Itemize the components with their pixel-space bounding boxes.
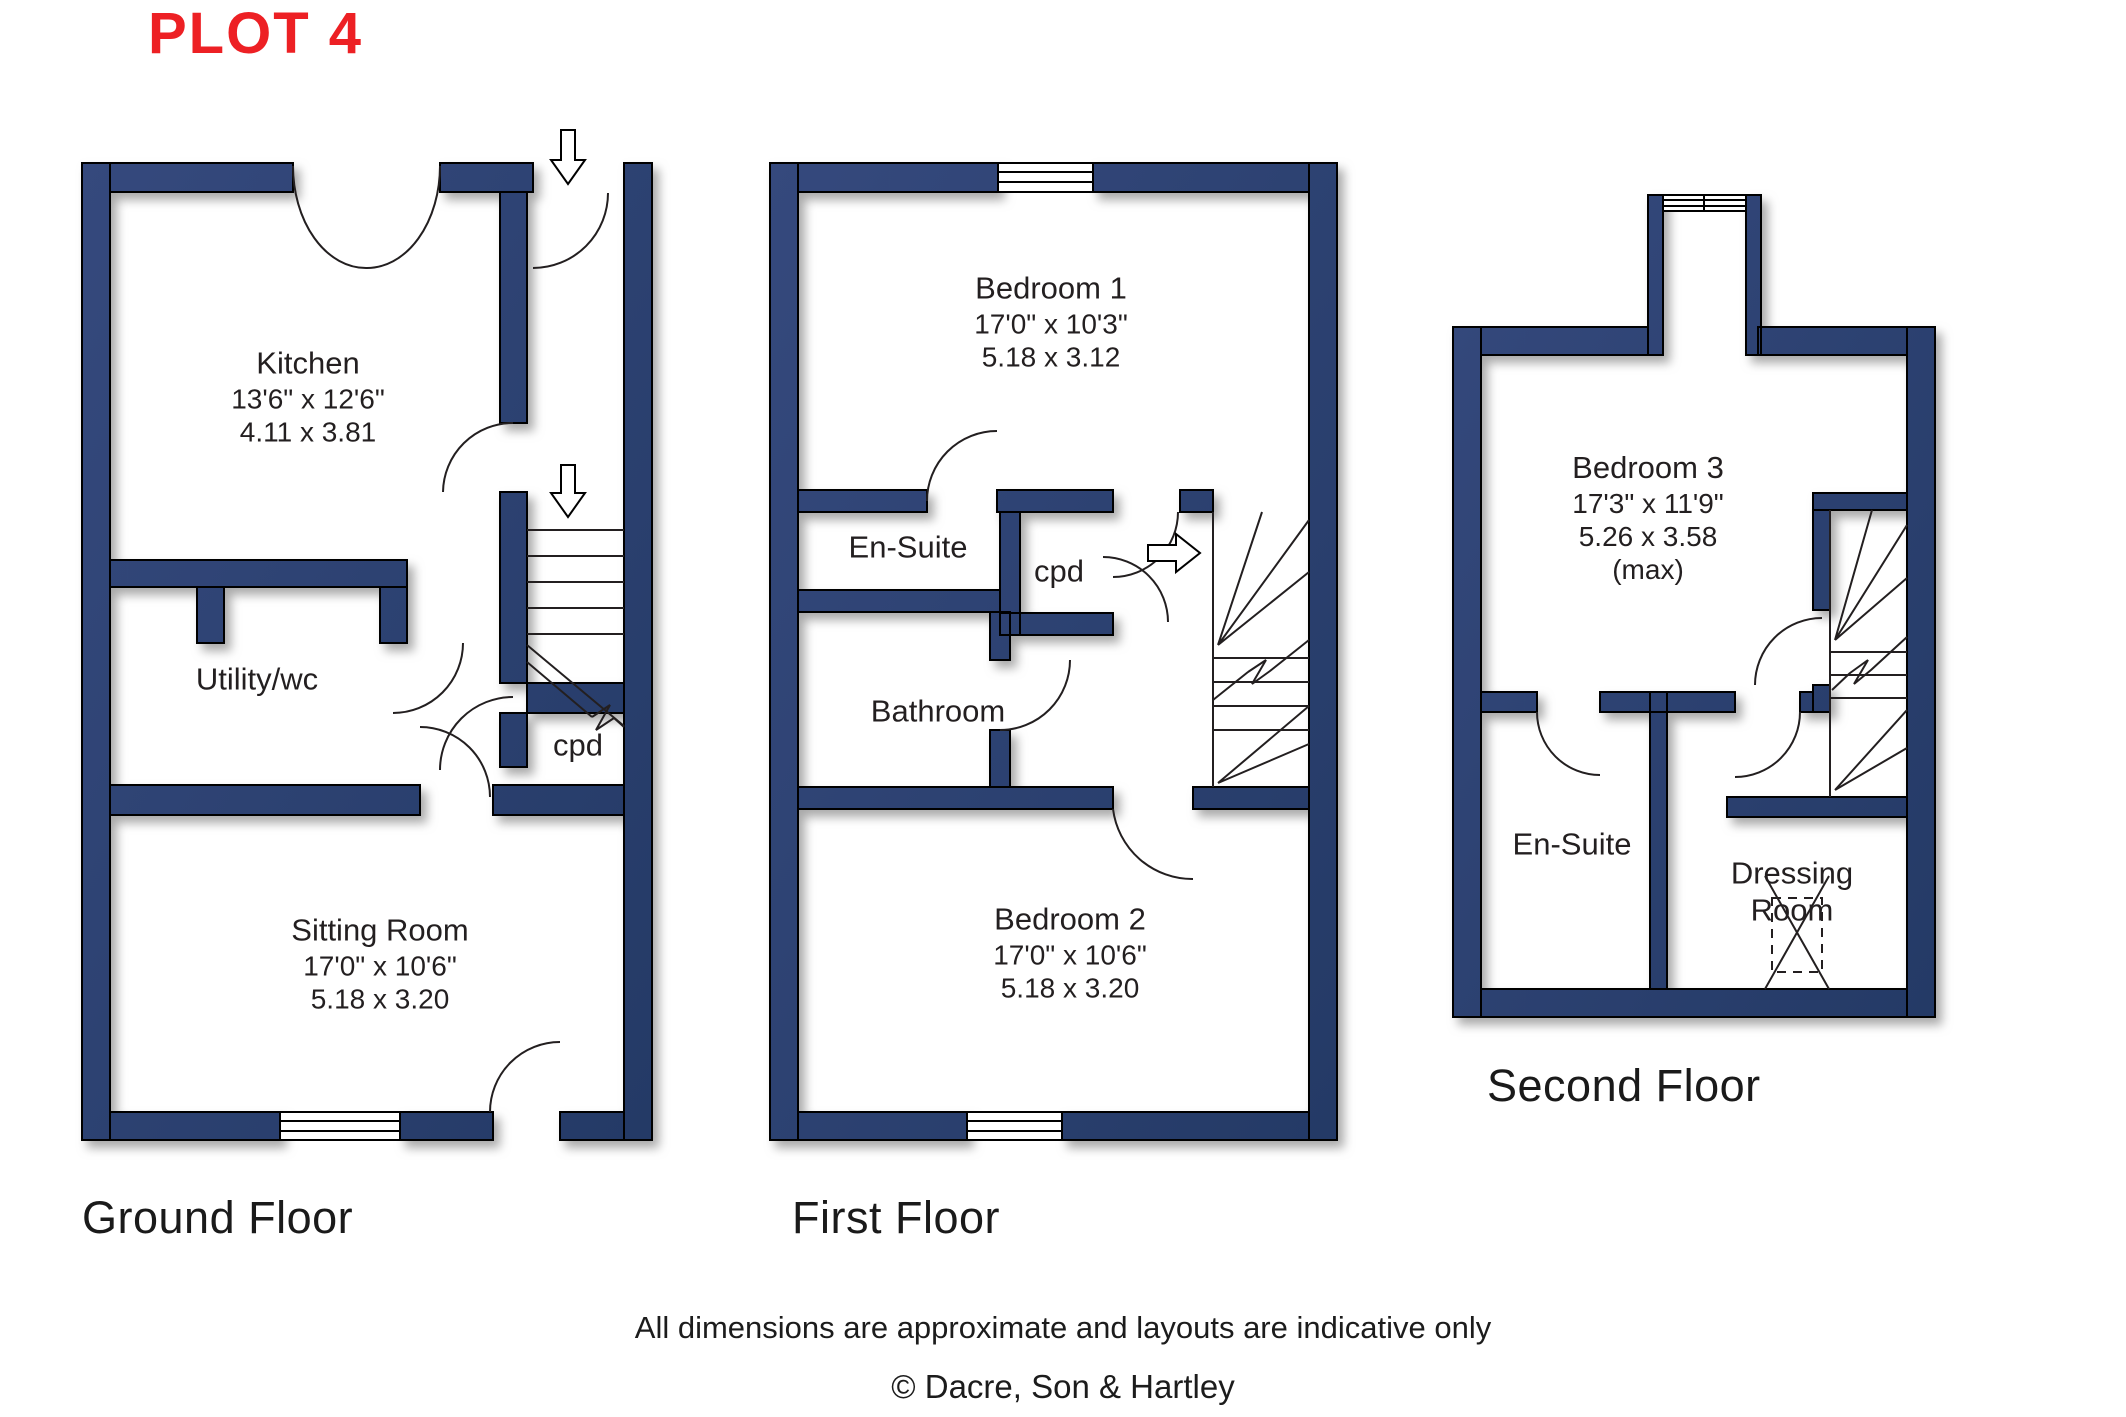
room-dim-metric: 5.18 x 3.12 <box>974 340 1128 373</box>
french-door-arc-right <box>366 166 440 268</box>
room-name: Dressing Room <box>1697 855 1887 928</box>
garden-door-arc <box>490 1042 560 1112</box>
second-floor-stairs <box>1830 510 1907 797</box>
room-label-utility-wc: Utility/wc <box>196 662 318 699</box>
entrance-door-arc <box>533 193 608 268</box>
room-name: Bedroom 3 <box>1572 450 1724 487</box>
caption-ground-floor: Ground Floor <box>82 1192 353 1244</box>
kitchen-door-arc <box>443 423 513 492</box>
stairs-door-arc <box>1755 618 1822 685</box>
ground-floor-window <box>280 1112 400 1140</box>
room-name: Utility/wc <box>196 662 318 699</box>
room-name: En-Suite <box>849 530 968 567</box>
room-label-bathroom: Bathroom <box>871 694 1005 731</box>
room-label-kitchen: Kitchen 13'6" x 12'6" 4.11 x 3.81 <box>231 346 385 449</box>
room-label-cpd-ground: cpd <box>553 728 603 765</box>
second-floor-window <box>1663 195 1746 211</box>
room-label-bedroom-1: Bedroom 1 17'0" x 10'3" 5.18 x 3.12 <box>974 271 1128 374</box>
room-dim-metric: 5.26 x 3.58 <box>1572 520 1724 553</box>
room-dim-imperial: 17'0" x 10'6" <box>993 938 1147 971</box>
bedroom2-door-arc <box>1113 809 1193 879</box>
room-name: Bedroom 1 <box>974 271 1128 308</box>
room-dim-metric: 5.18 x 3.20 <box>291 982 468 1015</box>
room-label-bedroom-2: Bedroom 2 17'0" x 10'6" 5.18 x 3.20 <box>993 902 1147 1005</box>
stairs-down-arrow-icon <box>551 465 585 517</box>
room-name: Bathroom <box>871 694 1005 731</box>
room-name: cpd <box>553 728 603 765</box>
bathroom-door-arc <box>1000 660 1070 730</box>
room-dim-metric: 4.11 x 3.81 <box>231 415 385 448</box>
room-dim-imperial: 13'6" x 12'6" <box>231 382 385 415</box>
room-name: cpd <box>1034 554 1084 591</box>
stairs-right-arrow-icon <box>1148 534 1200 572</box>
caption-second-floor: Second Floor <box>1487 1060 1761 1112</box>
first-floor-stairs <box>1213 512 1309 787</box>
room-dim-imperial: 17'3" x 11'9" <box>1572 487 1724 520</box>
copyright-text: © Dacre, Son & Hartley <box>0 1368 2126 1406</box>
room-name: En-Suite <box>1513 827 1632 864</box>
room-name: Sitting Room <box>291 913 468 950</box>
room-name: Bedroom 2 <box>993 902 1147 939</box>
disclaimer-text: All dimensions are approximate and layou… <box>0 1310 2126 1346</box>
ensuite2-door-arc <box>1537 712 1600 775</box>
bedroom1-door-arc <box>927 431 997 501</box>
room-label-ensuite-second: En-Suite <box>1513 827 1632 864</box>
room-name: Kitchen <box>231 346 385 383</box>
room-dim-imperial: 17'0" x 10'6" <box>291 949 468 982</box>
room-dim-note: (max) <box>1572 553 1724 586</box>
utility-door-arc <box>393 643 463 713</box>
room-label-dressing-room: Dressing Room <box>1697 855 1887 928</box>
room-label-cpd-first: cpd <box>1034 554 1084 591</box>
entrance-down-arrow-icon <box>551 130 585 184</box>
room-dim-metric: 5.18 x 3.20 <box>993 971 1147 1004</box>
room-dim-imperial: 17'0" x 10'3" <box>974 307 1128 340</box>
room-label-ensuite-first: En-Suite <box>849 530 968 567</box>
french-door-arc-left <box>293 166 366 268</box>
room-label-bedroom-3: Bedroom 3 17'3" x 11'9" 5.26 x 3.58 (max… <box>1572 450 1724 586</box>
plot-title: PLOT 4 <box>148 0 363 67</box>
dressing-door-arc <box>1735 712 1800 777</box>
sitting-room-door-arc <box>420 727 490 797</box>
caption-first-floor: First Floor <box>792 1192 1000 1244</box>
room-label-sitting-room: Sitting Room 17'0" x 10'6" 5.18 x 3.20 <box>291 913 468 1016</box>
